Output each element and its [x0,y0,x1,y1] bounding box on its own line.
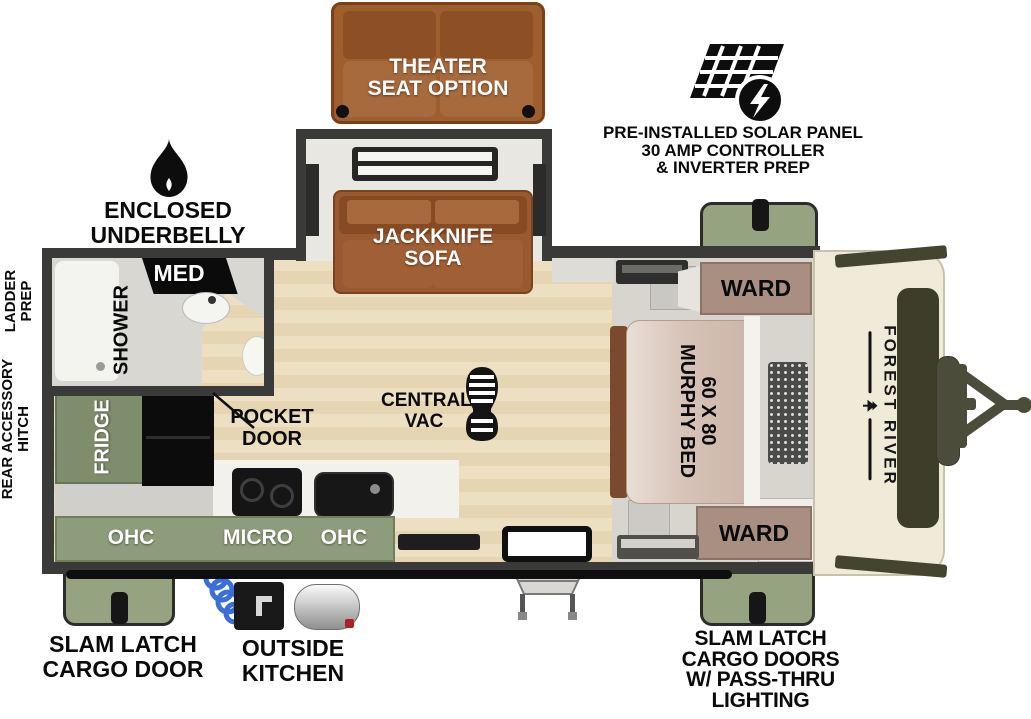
ohc-right-label: OHC [308,527,380,549]
top-wall-right [544,246,820,258]
slam-latch-handle-icon [111,592,128,624]
ward-bottom-label: WARD [696,521,812,545]
solar-panel-icon [680,36,792,128]
shower-pan [55,261,119,381]
cup-holder-dot [336,105,349,118]
sofa-back-cushion [347,200,431,224]
burner-icon [270,484,294,508]
faucet-icon [256,596,262,616]
slam-latch-left-label: SLAM LATCHCARGO DOOR [28,632,218,682]
outside-kitchen-label: OUTSIDEKITCHEN [230,636,356,686]
toilet [242,336,272,376]
bed-mesh-mat [768,362,808,464]
logo-bar [869,332,872,394]
sink-drain-icon [370,484,380,494]
shower-label: SHOWER [111,285,132,375]
central-vac-label: CENTRALVAC [381,390,467,432]
window-pane [358,166,492,175]
rear-accessory-hitch-label: REAR ACCESSORYHITCH [0,359,32,500]
cooktop [232,468,302,516]
slideout-side-window-icon [306,164,319,236]
sofa-back-cushion [440,11,533,59]
brand-text: FOREST RIVER [880,325,900,487]
forest-river-logo: FOREST RIVER [863,325,900,487]
ward-side-face [678,266,700,312]
fridge-shelf-line [146,436,210,439]
bed-foot-panel [744,316,760,506]
solar-feature-label: PRE-INSTALLED SOLAR PANEL30 AMP CONTROLL… [598,124,868,177]
sofa-back-cushion [435,200,519,224]
roof-vent-icon [616,260,688,284]
underbody-rail [66,570,732,579]
rear-cap-window [897,288,939,528]
ohc-left-label: OHC [96,527,166,549]
rv-floorplan-diagram: THEATERSEAT OPTION JACKKNIFESOFA PRE-INS… [0,0,1031,719]
logo-underline [863,325,878,487]
bathroom: MED SHOWER [42,248,274,396]
burner-icon [240,478,264,502]
micro-label: MICRO [216,527,300,549]
ladder-prep-label: LADDERPREP [3,270,35,333]
slam-latch-handle-icon [749,592,766,624]
slideout-side-window-icon [533,164,546,236]
bedroom-window-icon [617,535,699,559]
slam-latch-handle-icon [752,199,769,231]
bootprint-icon [463,366,501,442]
sofa-back-cushion [343,11,436,59]
outside-griddle [234,582,284,630]
fridge-label: FRIDGE [92,399,113,475]
logo-bar [869,419,872,481]
entry-door [502,526,592,562]
water-tank [294,584,360,630]
bathroom-sink [182,292,230,324]
vent-slot [622,265,682,273]
murphy-bed-label: 60 X 80MURPHY BED [676,344,718,478]
slam-latch-right-label: SLAM LATCHCARGO DOORS W/ PASS-THRULIGHTI… [668,629,853,711]
fridge-black-unit [142,390,214,486]
window-pane [621,539,695,548]
window-pane [358,152,492,161]
interior-wall-shadow [552,258,614,282]
faucet-icon [208,296,216,304]
tank-valve-icon [345,619,354,628]
pocket-door-label: POCKETDOOR [222,406,322,450]
theater-seat-label: THEATERSEAT OPTION [341,56,535,101]
med-cabinet-label: MED [144,261,214,285]
kitchen-sink [314,472,394,518]
jackknife-sofa-label: JACKKNIFESOFA [343,226,523,271]
ward-top-label: WARD [700,276,812,300]
hitch-a-frame-icon [948,362,1031,450]
cup-holder-dot [522,105,535,118]
tree-icon [863,400,878,413]
floor-mat [398,534,480,550]
counter-corner [55,484,213,518]
slideout-window-icon [352,147,498,181]
shower-head-icon [96,362,105,371]
flame-icon [146,138,192,200]
